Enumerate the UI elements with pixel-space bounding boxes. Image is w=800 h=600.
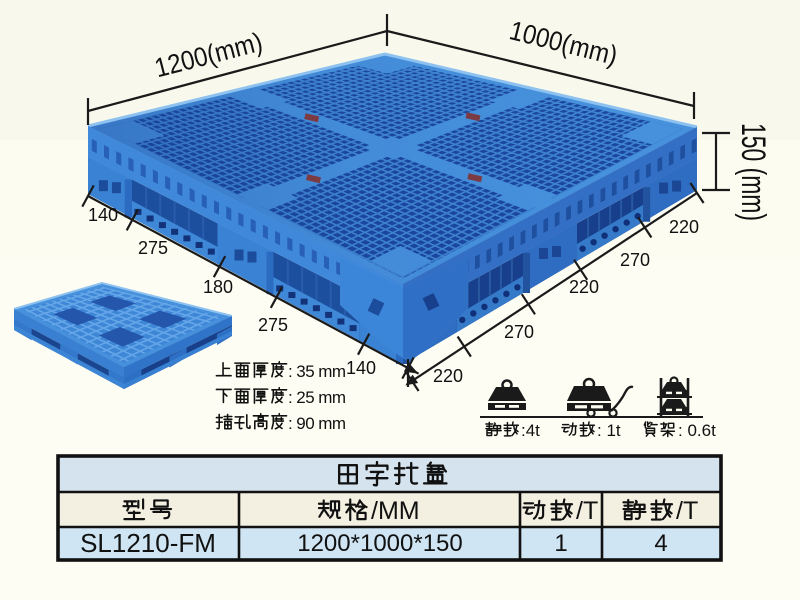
svg-text:: 0.6t: : 0.6t	[678, 421, 716, 440]
svg-text:1: 1	[554, 530, 567, 557]
svg-text:140: 140	[88, 205, 118, 225]
svg-text:140: 140	[346, 358, 376, 378]
svg-text:270: 270	[620, 250, 650, 270]
svg-text:180: 180	[203, 277, 233, 297]
svg-text:/T: /T	[576, 497, 598, 525]
svg-text:: 90 mm: : 90 mm	[288, 414, 346, 433]
svg-text:SL1210-FM: SL1210-FM	[80, 528, 216, 558]
svg-text:270: 270	[504, 322, 534, 342]
svg-text:275: 275	[138, 238, 168, 258]
svg-text:1200*1000*150: 1200*1000*150	[297, 530, 463, 557]
svg-text:275: 275	[258, 315, 288, 335]
svg-text:150 (mm): 150 (mm)	[734, 123, 772, 221]
svg-text:/T: /T	[676, 497, 698, 525]
svg-text:: 35 mm: : 35 mm	[288, 362, 346, 381]
svg-text:: 25 mm: : 25 mm	[288, 388, 346, 407]
svg-text::4t: :4t	[521, 421, 540, 440]
svg-text:220: 220	[569, 277, 599, 297]
svg-text:4: 4	[654, 530, 667, 557]
svg-text:220: 220	[669, 217, 699, 237]
svg-text:/MM: /MM	[371, 497, 420, 525]
svg-text:: 1t: : 1t	[597, 421, 621, 440]
svg-text:220: 220	[433, 366, 463, 386]
